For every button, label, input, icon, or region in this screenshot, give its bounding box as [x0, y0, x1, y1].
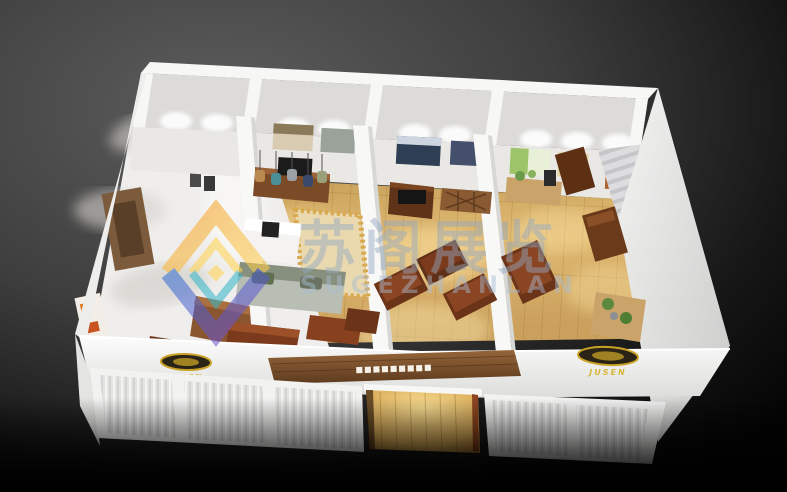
coffee-machine: [261, 221, 279, 237]
wine-rack-console: [440, 188, 492, 214]
bottom-shadow-fade: [0, 398, 787, 492]
booth-render-scene: ■■■■■■■■■ JUSEN JUSEN: [0, 0, 787, 492]
plant-console: [590, 292, 646, 342]
tv-screen-2: [398, 190, 426, 204]
poster-green-band: [509, 148, 528, 175]
plant: [515, 171, 525, 181]
watermark-latin-text: SUGEZHANLAN: [300, 271, 580, 299]
screenshot-root: ■■■■■■■■■ JUSEN JUSEN: [0, 0, 787, 492]
wood-bench: [344, 308, 380, 334]
poster-gray: [320, 128, 355, 154]
console-frame: [544, 170, 556, 186]
plant: [528, 170, 536, 178]
emblem-right-label: JUSEN: [587, 368, 626, 377]
poster-bedroom-top: [273, 123, 313, 135]
